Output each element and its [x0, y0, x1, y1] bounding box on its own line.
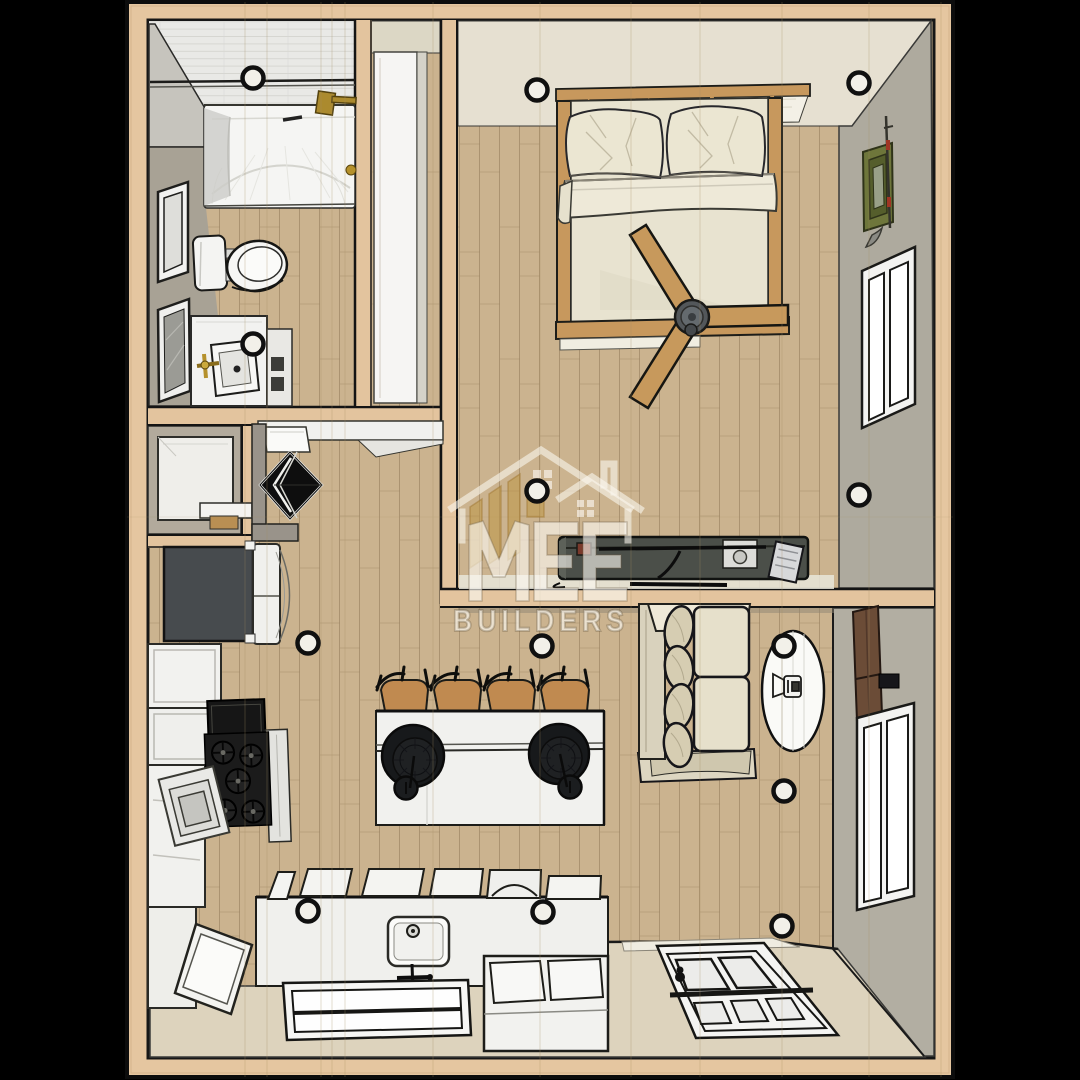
- svg-text:BUILDERS: BUILDERS: [453, 603, 629, 638]
